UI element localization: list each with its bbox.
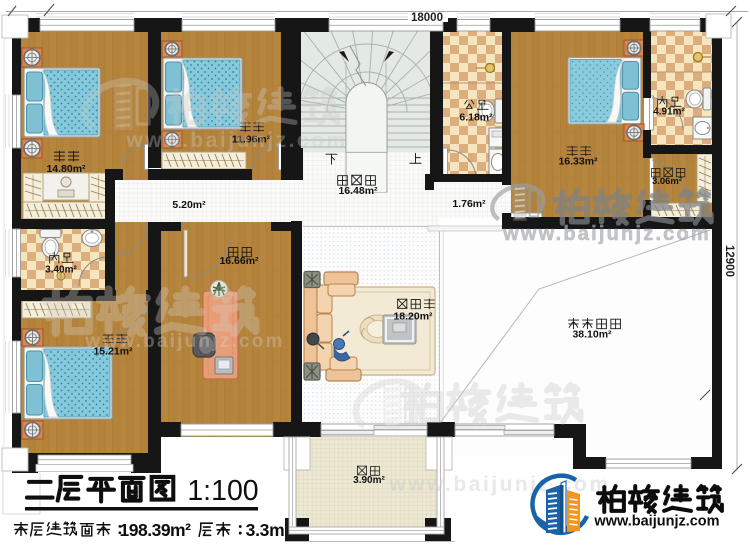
- svg-text:3.3m: 3.3m: [246, 520, 285, 540]
- svg-text:www.baijunjz.com: www.baijunjz.com: [502, 223, 711, 245]
- svg-text:16.66m²: 16.66m²: [219, 255, 259, 267]
- svg-text:1.76m²: 1.76m²: [452, 198, 486, 210]
- svg-text:16.48m²: 16.48m²: [338, 185, 378, 197]
- svg-text:www.baijunjz.com: www.baijunjz.com: [125, 129, 347, 152]
- svg-text:3.06m²: 3.06m²: [652, 176, 682, 187]
- svg-text:3.90m²: 3.90m²: [353, 475, 385, 486]
- svg-text:6.18m²: 6.18m²: [459, 112, 493, 124]
- svg-text:1:100: 1:100: [187, 475, 258, 507]
- svg-text:www.baijunjz.com: www.baijunjz.com: [388, 473, 610, 496]
- svg-text:12900: 12900: [723, 245, 735, 277]
- svg-text:18.20m²: 18.20m²: [393, 311, 433, 323]
- svg-text:18000: 18000: [411, 12, 443, 24]
- svg-text:198.39m²: 198.39m²: [120, 520, 192, 540]
- svg-text:5.20m²: 5.20m²: [172, 199, 206, 211]
- svg-text:16.33m²: 16.33m²: [558, 156, 598, 168]
- svg-text:3.40m²: 3.40m²: [45, 265, 77, 276]
- svg-text:14.80m²: 14.80m²: [46, 163, 86, 175]
- svg-text:www.baijunjz.com: www.baijunjz.com: [593, 514, 719, 530]
- svg-text:www.baijunjz.com: www.baijunjz.com: [84, 331, 284, 352]
- svg-text:38.10m²: 38.10m²: [572, 329, 612, 341]
- svg-text:4.91m²: 4.91m²: [653, 107, 685, 118]
